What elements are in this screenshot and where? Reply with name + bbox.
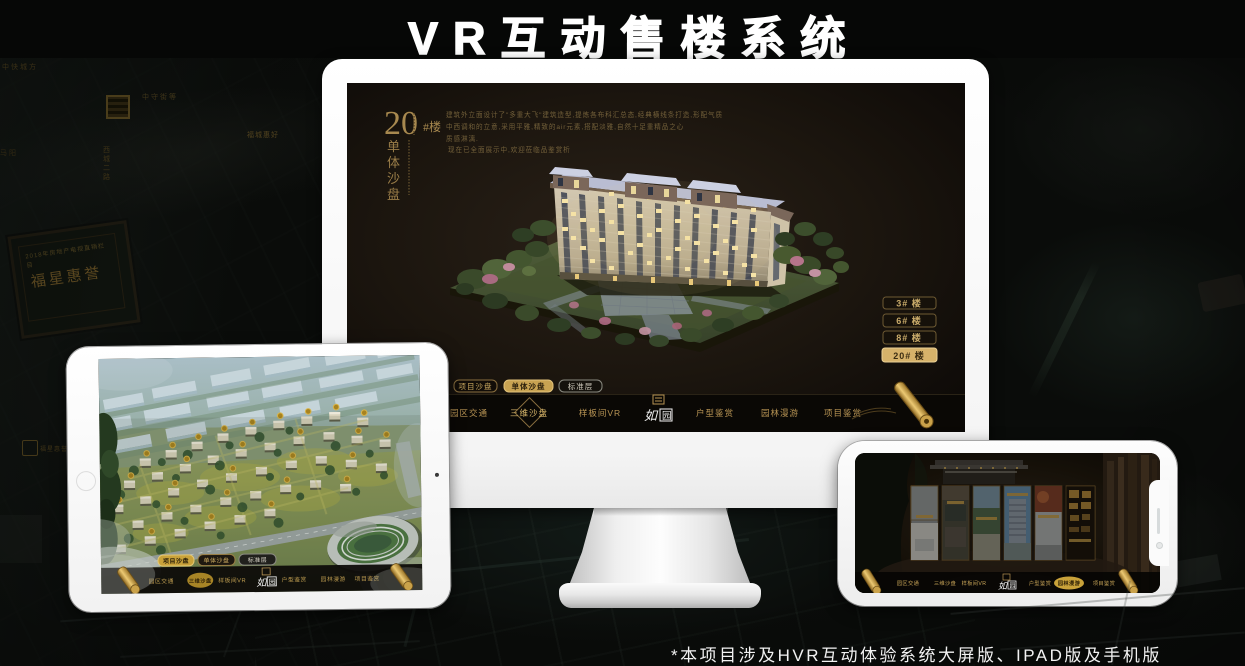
svg-text:园: 园 (662, 411, 672, 422)
svg-text:项目沙盘: 项目沙盘 (459, 381, 493, 391)
svg-text:现在已全面展示中,欢迎莅临品鉴赏析: 现在已全面展示中,欢迎莅临品鉴赏析 (448, 145, 571, 154)
svg-text:户型鉴赏: 户型鉴赏 (696, 408, 734, 418)
svg-text:建筑外立面设计了"多重大飞"建筑造型,提炼各布科汇总态,经典: 建筑外立面设计了"多重大飞"建筑造型,提炼各布科汇总态,经典横线条打造,形配气质 (446, 110, 723, 119)
svg-text:20: 20 (384, 105, 418, 142)
svg-text:如: 如 (998, 581, 1008, 591)
svg-text:园林漫游: 园林漫游 (761, 408, 799, 418)
svg-text:3# 楼: 3# 楼 (896, 298, 922, 309)
svg-text:6# 楼: 6# 楼 (896, 315, 922, 326)
svg-text:样板间VR: 样板间VR (579, 408, 621, 418)
svg-text:三维沙盘: 三维沙盘 (510, 408, 548, 418)
svg-text:项目鉴赏: 项目鉴赏 (1093, 579, 1115, 587)
svg-text:三维沙盘: 三维沙盘 (934, 579, 956, 587)
svg-text:园区交通: 园区交通 (450, 408, 488, 418)
svg-text:园: 园 (1010, 583, 1016, 590)
svg-text:标准层: 标准层 (568, 381, 594, 391)
svg-text:单体沙盘: 单体沙盘 (512, 381, 546, 391)
svg-text:园林漫游: 园林漫游 (1058, 579, 1081, 587)
svg-text:中西调和的立意,采用平雅,精致的air元素,搭配淡雅,自然十: 中西调和的立意,采用平雅,精致的air元素,搭配淡雅,自然十足重精品之心 (446, 122, 684, 131)
svg-text:如: 如 (644, 408, 659, 423)
svg-text:质感淋漓.: 质感淋漓. (446, 134, 479, 143)
svg-text:三维沙盘: 三维沙盘 (189, 577, 212, 585)
svg-text:盘: 盘 (387, 187, 400, 202)
svg-text:样板间VR: 样板间VR (962, 579, 987, 587)
svg-text:8# 楼: 8# 楼 (896, 332, 922, 343)
svg-text:沙: 沙 (387, 171, 400, 186)
svg-text:标准层: 标准层 (248, 556, 268, 564)
svg-text:园: 园 (269, 578, 276, 586)
svg-text:体: 体 (387, 155, 400, 170)
svg-text:#楼: #楼 (423, 119, 441, 134)
svg-text:户型鉴赏: 户型鉴赏 (1029, 579, 1051, 587)
svg-text:20# 楼: 20# 楼 (893, 350, 925, 361)
svg-text:园区交通: 园区交通 (897, 579, 920, 587)
svg-text:单: 单 (387, 139, 400, 154)
